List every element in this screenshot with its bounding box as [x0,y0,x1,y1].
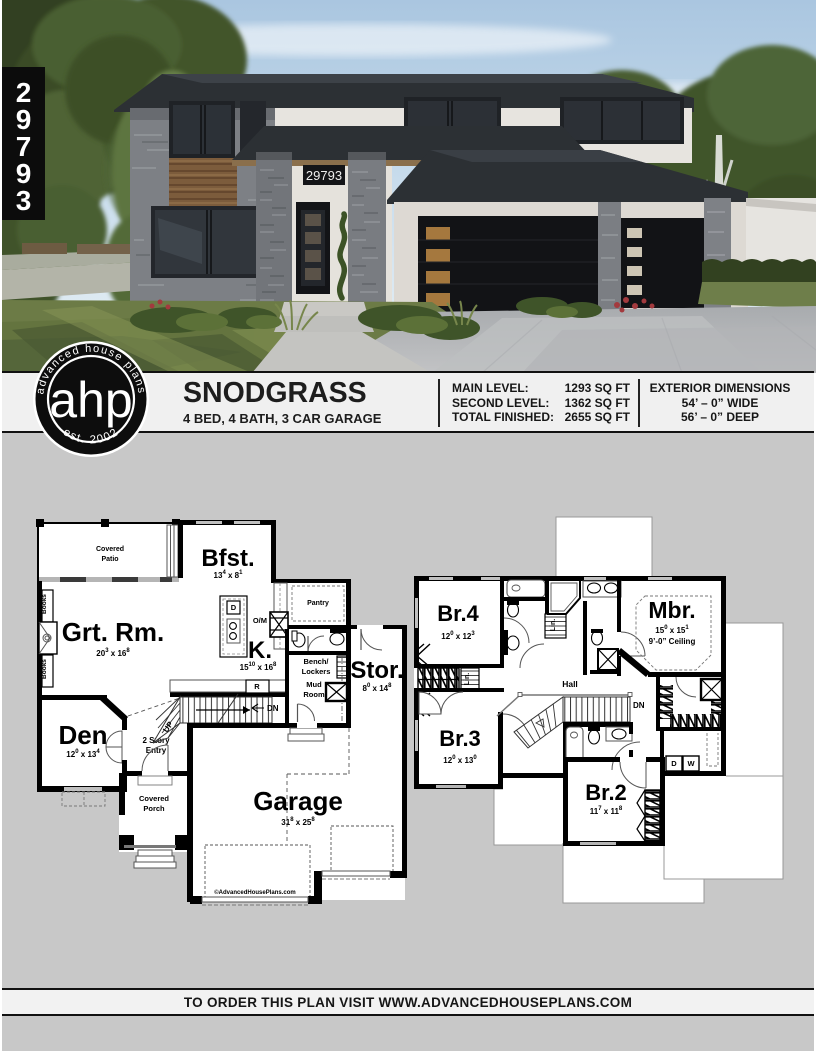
svg-text:Porch: Porch [143,804,165,813]
svg-text:ahp: ahp [49,372,132,428]
svg-text:134 x 81: 134 x 81 [214,570,244,580]
svg-text:Bench/: Bench/ [303,657,329,666]
svg-text:150 x 151: 150 x 151 [655,625,689,635]
svg-text:Br.2: Br.2 [585,780,627,805]
svg-text:O/M: O/M [253,616,267,625]
svg-text:©AdvancedHousePlans.com: ©AdvancedHousePlans.com [214,889,295,896]
svg-text:W: W [687,759,695,768]
svg-text:DN: DN [267,704,279,713]
svg-text:318 x 258: 318 x 258 [281,817,315,827]
svg-text:Lin.: Lin. [550,619,557,631]
svg-text:Hall: Hall [562,679,578,689]
svg-text:Mbr.: Mbr. [648,597,695,623]
svg-text:Covered: Covered [139,794,169,803]
svg-text:Stor.: Stor. [350,657,403,684]
svg-text:Room: Room [303,690,325,699]
svg-text:R: R [254,682,260,691]
svg-text:Books: Books [41,659,48,679]
svg-text:1510 x 168: 1510 x 168 [240,662,277,672]
svg-text:Den: Den [58,720,107,750]
svg-text:Bfst.: Bfst. [201,545,254,572]
svg-text:203 x 168: 203 x 168 [96,648,130,658]
svg-text:Br.3: Br.3 [439,726,481,751]
svg-text:D: D [671,759,677,768]
svg-text:Pantry: Pantry [307,600,329,607]
svg-text:Covered: Covered [96,546,124,553]
svg-text:D: D [231,603,237,612]
svg-text:Patio: Patio [101,556,118,563]
svg-text:Br.4: Br.4 [437,601,479,626]
svg-text:Garage: Garage [253,786,343,816]
svg-text:Books: Books [41,594,48,614]
svg-text:120 x 123: 120 x 123 [441,631,475,641]
svg-text:120 x 130: 120 x 130 [443,755,477,765]
svg-text:80 x 148: 80 x 148 [363,683,393,693]
svg-text:DN: DN [633,701,645,710]
svg-text:Lockers: Lockers [302,667,331,676]
svg-text:Mud: Mud [306,680,322,689]
svg-text:29793: 29793 [306,168,342,183]
svg-text:Lin.: Lin. [464,673,471,685]
svg-text:117 x 118: 117 x 118 [590,806,623,816]
svg-text:Grt. Rm.: Grt. Rm. [62,617,165,647]
svg-text:K.: K. [248,637,272,664]
svg-text:9’-0” Ceiling: 9’-0” Ceiling [649,637,696,646]
svg-text:120 x 134: 120 x 134 [66,749,100,759]
